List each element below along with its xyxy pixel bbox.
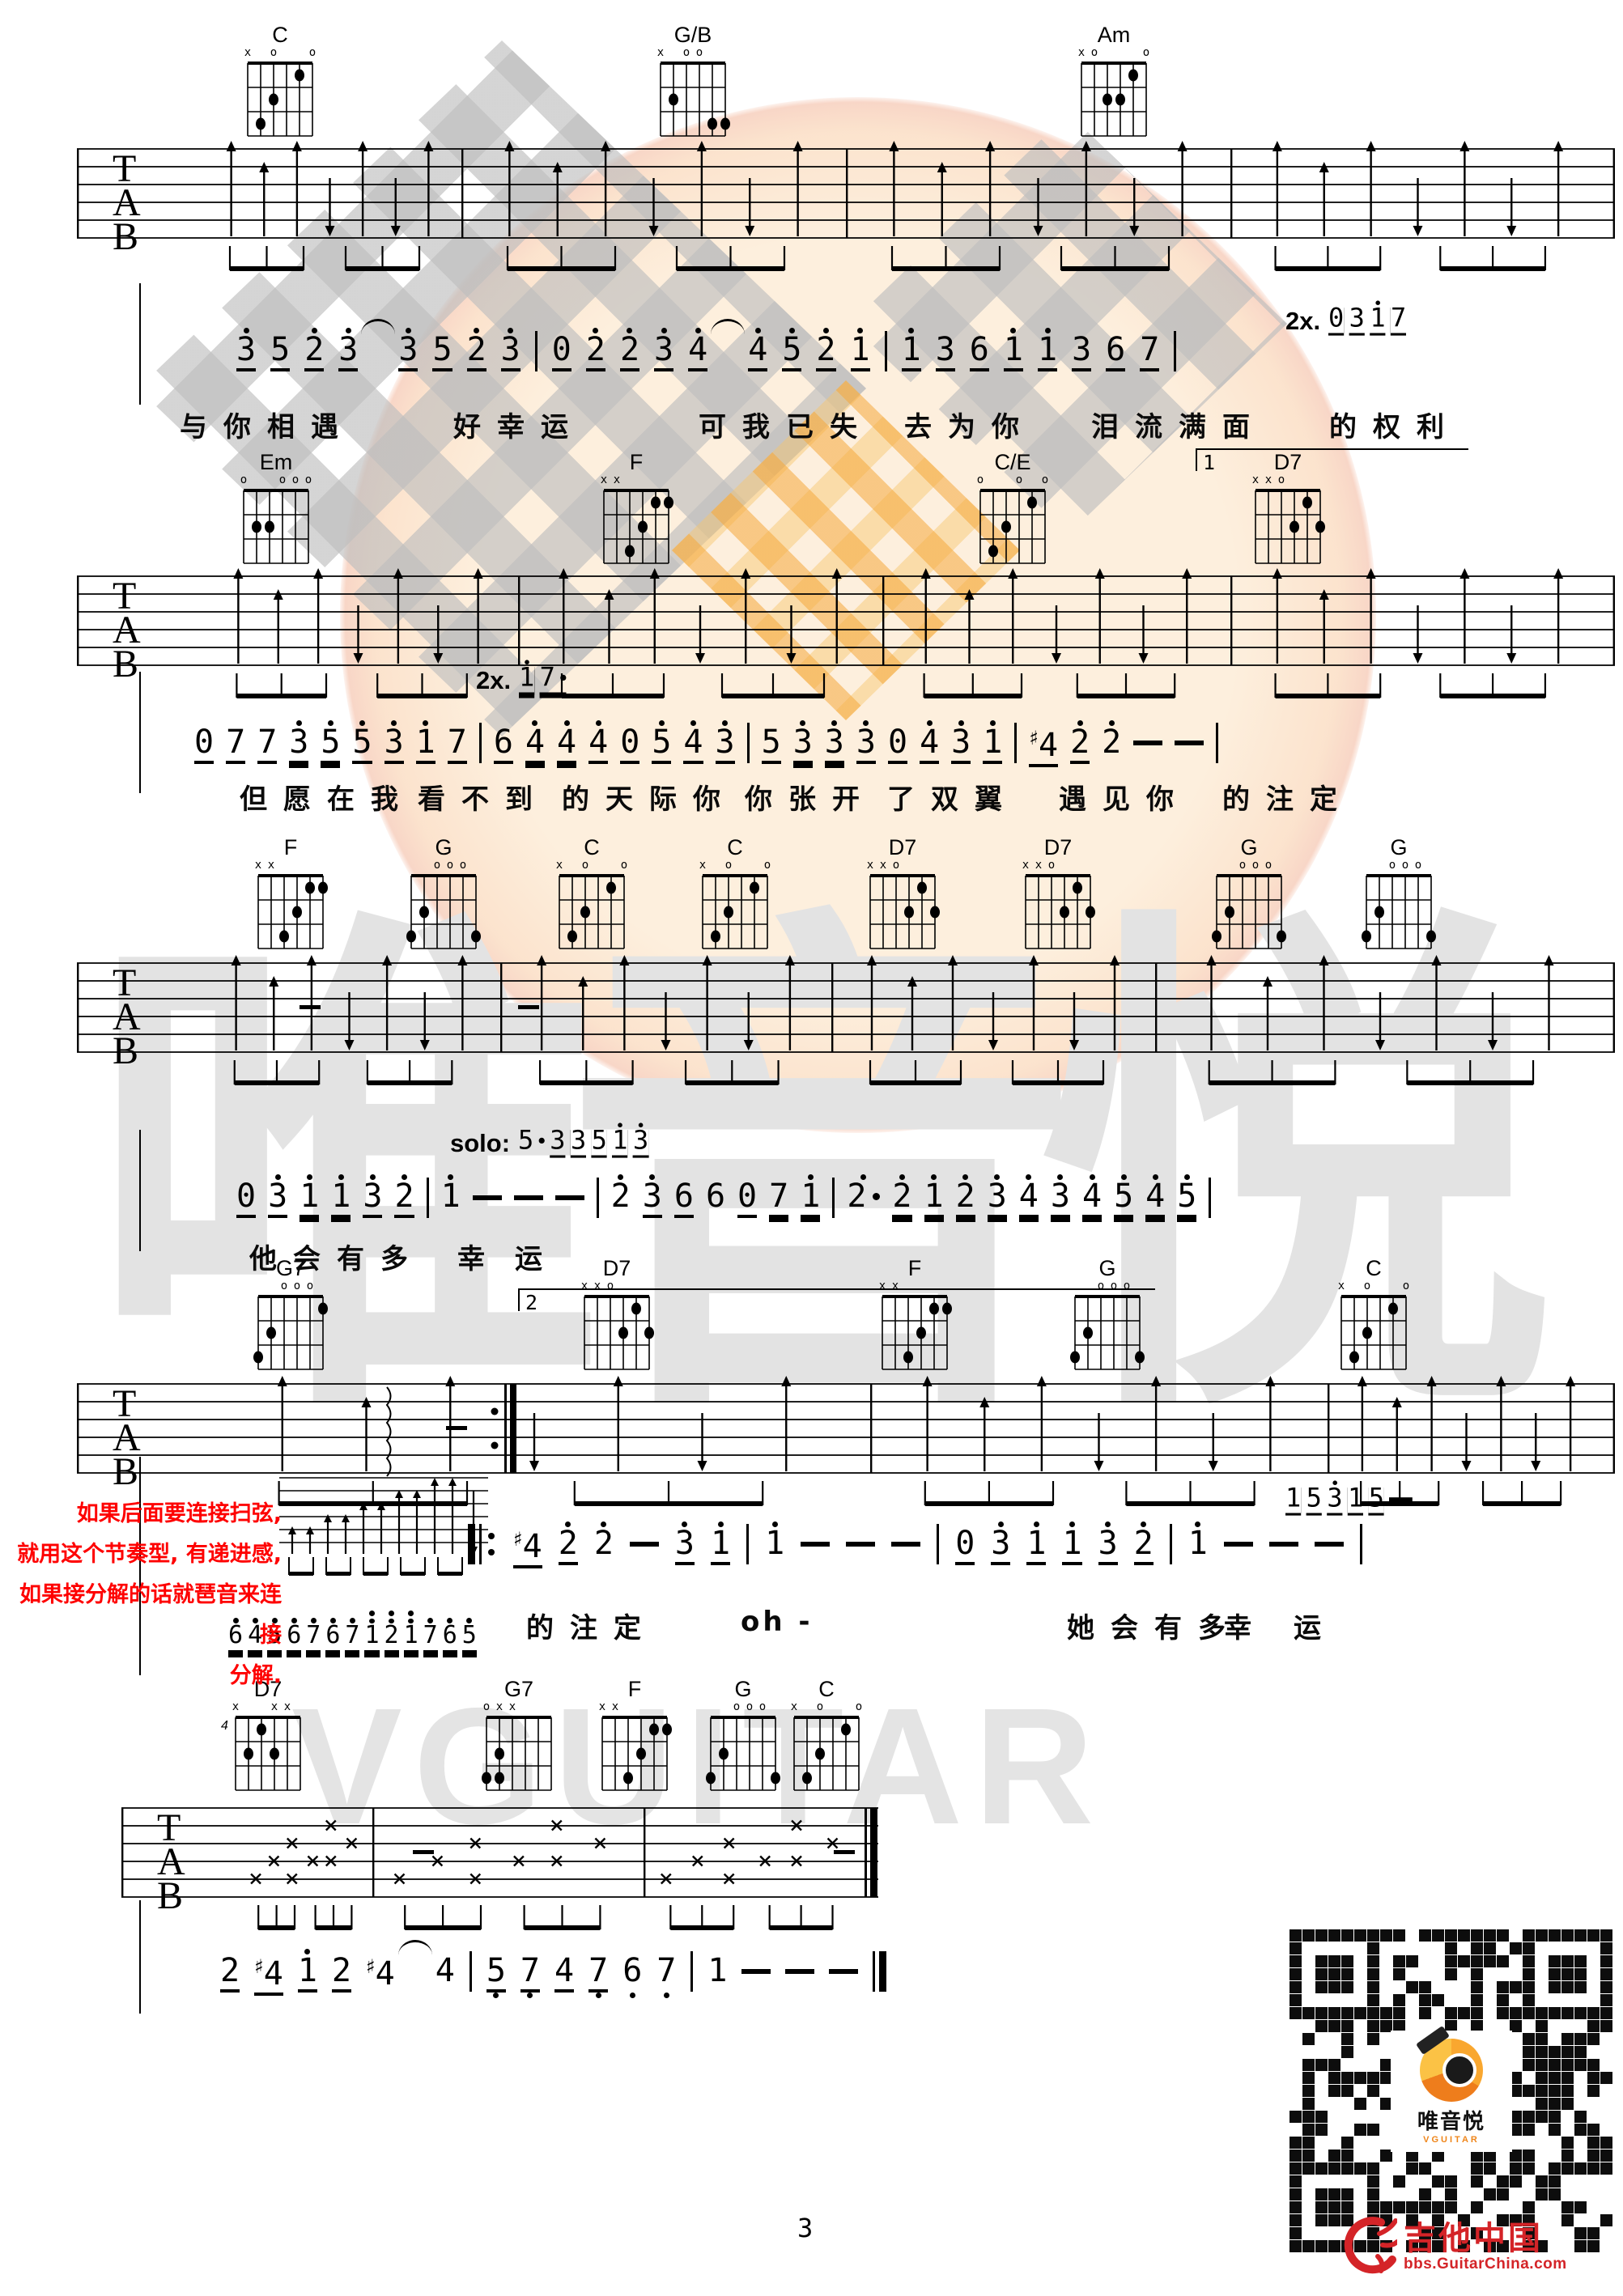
jianpu-note: 1 xyxy=(441,1162,461,1233)
jianpu-note: 1 xyxy=(1004,316,1023,386)
jianpu-note: 3 xyxy=(398,316,418,386)
annotation-label: 2x. xyxy=(1285,307,1320,347)
jianpu-note: 3 xyxy=(988,1162,1007,1233)
chord-string-markers: xxo xyxy=(1247,474,1328,487)
note-digit: 6 xyxy=(325,1623,340,1650)
chord-diagram: Fxx xyxy=(594,1677,675,1799)
lyric-segment: 的权利 xyxy=(1329,405,1460,444)
note-line: 分解. xyxy=(10,1656,282,1696)
string-marker: o xyxy=(1412,859,1425,872)
duration-dash xyxy=(1175,741,1204,745)
string-marker: o xyxy=(444,859,457,872)
jianpu-note: 4 xyxy=(1082,1162,1102,1233)
lyric-segment: 运 xyxy=(515,1237,559,1276)
note-digit: 4 xyxy=(554,1954,574,1989)
note-digit: 4 xyxy=(748,333,767,368)
note-digit: 6 xyxy=(1106,333,1125,368)
barline xyxy=(1174,331,1176,371)
note-digit: ♯4 xyxy=(254,1950,283,1993)
string-marker: x xyxy=(864,859,877,872)
chord-string-markers: ooo xyxy=(703,1701,784,1714)
svg-text:×: × xyxy=(593,1829,607,1857)
lyric-segment: 但愿在我 xyxy=(240,777,414,817)
chord-grid xyxy=(480,1714,558,1795)
jianpu-note: 3 xyxy=(289,708,308,779)
jianpu-note: 7 xyxy=(257,708,277,779)
string-marker: o xyxy=(431,859,444,872)
note-digit: 1 xyxy=(441,1180,461,1215)
string-marker xyxy=(293,47,306,60)
note-digit: 7 xyxy=(345,1623,359,1650)
string-marker xyxy=(278,859,291,872)
note-digit: 1 xyxy=(1038,333,1057,368)
svg-text:×: × xyxy=(659,1865,673,1893)
string-marker: o xyxy=(743,1701,756,1714)
jianpu-note: 4 xyxy=(557,708,576,779)
chord-grid xyxy=(788,1714,865,1795)
chord-name: G xyxy=(1067,1256,1148,1280)
note-digit: 0 xyxy=(737,1180,757,1215)
jianpu-note: 1 xyxy=(765,1509,784,1580)
string-marker: x xyxy=(1249,474,1262,487)
line-start-barline xyxy=(139,283,141,405)
lyric-segment: 与你相遇 xyxy=(180,405,355,444)
chord-grid xyxy=(1360,872,1438,953)
string-marker: o xyxy=(291,1280,304,1293)
string-marker xyxy=(304,859,317,872)
note-digit: 7 xyxy=(656,1954,676,1989)
note-digit: 3 xyxy=(363,1180,382,1215)
barline xyxy=(1216,723,1218,763)
string-marker xyxy=(1374,1280,1387,1293)
note-digit: 3 xyxy=(1327,1485,1342,1513)
tab-staff: TAB xyxy=(77,139,1615,283)
chord-grid xyxy=(405,872,482,953)
jianpu-note: 6 xyxy=(706,1162,725,1233)
note-digit: 6 xyxy=(622,1954,642,1989)
string-marker xyxy=(1058,859,1071,872)
string-marker: x xyxy=(788,1701,801,1714)
jianpu-note: 1 xyxy=(612,1113,627,1169)
note-digit: 3 xyxy=(936,333,955,368)
svg-text:×: × xyxy=(512,1847,526,1875)
note-digit: 3 xyxy=(675,1527,695,1562)
note-digit: 3 xyxy=(633,1127,648,1155)
string-marker: x xyxy=(229,1701,242,1714)
jianpu-note: 6 xyxy=(622,1937,642,2007)
string-marker xyxy=(1084,859,1097,872)
string-marker xyxy=(1314,474,1327,487)
jianpu-note: 3 xyxy=(654,316,673,386)
note-line: 如果接分解的话就琶音来连接 xyxy=(10,1575,282,1656)
note-digit: 1 xyxy=(416,726,435,761)
chord-diagram: Fxx xyxy=(596,450,677,572)
string-marker xyxy=(592,859,605,872)
note-digit: 7 xyxy=(226,726,245,761)
note-digit: 1 xyxy=(801,1180,820,1215)
svg-text:×: × xyxy=(690,1847,705,1875)
barline xyxy=(1209,1178,1211,1218)
string-marker: o xyxy=(890,859,903,872)
chord-grid xyxy=(252,872,329,953)
jianpu-note: 3 xyxy=(268,1162,287,1233)
duration-dash xyxy=(630,1542,659,1547)
jianpu-note: 0 xyxy=(1328,291,1344,347)
string-marker xyxy=(566,859,579,872)
page-number: 3 xyxy=(797,2213,813,2243)
jianpu-note: 3 xyxy=(571,1113,586,1169)
string-marker xyxy=(1373,859,1386,872)
chord-grid xyxy=(241,60,319,141)
chord-string-markers: xxx xyxy=(227,1701,308,1714)
string-marker xyxy=(801,1701,814,1714)
repeat-annotation: 2x.17 xyxy=(476,636,578,707)
note-digit: 3 xyxy=(856,726,876,761)
jianpu-note: 5 xyxy=(462,1611,477,1668)
note-digit: 2 xyxy=(220,1954,240,1989)
note-digit: ♯4 xyxy=(366,1950,395,1993)
note-digit: 3 xyxy=(550,1127,565,1155)
jianpu-note: ♯4 xyxy=(254,1933,283,2010)
string-marker xyxy=(916,859,928,872)
string-marker xyxy=(1000,474,1013,487)
jianpu-note: 2 xyxy=(220,1937,240,2007)
note-digit: 2 xyxy=(620,333,639,368)
note-digit: 3 xyxy=(825,726,844,761)
string-marker xyxy=(704,1701,717,1714)
jianpu-note: 2 xyxy=(956,1162,975,1233)
string-marker: o xyxy=(1140,47,1153,60)
line-start-barline xyxy=(139,1900,141,2014)
note-digit: 2 xyxy=(1102,726,1121,761)
jianpu-note: 3 xyxy=(675,1509,695,1580)
string-marker xyxy=(1425,859,1438,872)
note-digit: 4 xyxy=(588,726,608,761)
jianpu-note: ♯4 xyxy=(1029,704,1058,782)
annotation-label: 2x. xyxy=(476,666,511,707)
jianpu-line: 2♯412♯445747671 xyxy=(220,1933,886,2010)
jianpu-note: 4 xyxy=(554,1937,574,2007)
octave-dots-low xyxy=(630,1989,635,2007)
note-digit: 3 xyxy=(1349,305,1365,333)
svg-text:×: × xyxy=(722,1829,737,1857)
note-digit: 1 xyxy=(364,1623,379,1650)
note-digit: 3 xyxy=(571,1127,586,1155)
note-digit: 3 xyxy=(1051,1180,1070,1215)
lyric-segment: 她会有多 xyxy=(1067,1606,1242,1645)
jianpu-note: 1 xyxy=(331,1162,351,1233)
string-marker: o xyxy=(1236,859,1249,872)
duration-dash xyxy=(1315,1542,1344,1547)
chord-name: G7 xyxy=(478,1677,559,1701)
chord-diagram: Cxoo xyxy=(695,835,775,957)
element: 0317 xyxy=(1328,291,1406,347)
chord-name: Am xyxy=(1073,23,1154,47)
chord-name: G xyxy=(403,835,484,859)
chord-diagram: Gooo xyxy=(703,1677,784,1799)
duration-dash xyxy=(473,1195,502,1200)
jianpu-note: 3 xyxy=(1349,291,1365,347)
note-digit: ♯4 xyxy=(1029,722,1058,764)
note-digit: 2 xyxy=(611,1180,631,1215)
svg-text:×: × xyxy=(468,1865,482,1893)
chord-string-markers: xxo xyxy=(862,859,943,872)
note-digit: 1 xyxy=(1188,1527,1208,1562)
note-digit: 3 xyxy=(398,333,418,368)
jianpu-note: 4 xyxy=(525,708,545,779)
note-digit: ♯4 xyxy=(513,1523,542,1565)
duration-dash xyxy=(891,1542,920,1547)
jianpu-note: 6 xyxy=(674,1162,694,1233)
jianpu-note: 7 xyxy=(423,1611,438,1668)
chord-diagram: Gooo xyxy=(1358,835,1439,957)
guitarchina-name: 吉他中国 xyxy=(1404,2222,1567,2256)
jianpu-note: 4 xyxy=(683,708,703,779)
chord-diagram: Gooo xyxy=(403,835,484,957)
jianpu-note: 4 xyxy=(688,316,707,386)
string-marker xyxy=(839,1701,852,1714)
string-marker: x xyxy=(597,474,610,487)
string-marker xyxy=(649,474,662,487)
note-digit: 5 xyxy=(486,1954,506,1989)
string-marker xyxy=(317,1280,329,1293)
jianpu-note: 3 xyxy=(1072,316,1091,386)
tab-staff: TAB xyxy=(77,567,1615,711)
chord-name: G xyxy=(703,1677,784,1701)
chord-grid xyxy=(596,1714,673,1795)
jianpu-note: 7 xyxy=(306,1611,321,1668)
chord-string-markers: xx xyxy=(596,474,677,487)
note-digit: 3 xyxy=(793,726,813,761)
lyric-segment: 运 xyxy=(1294,1606,1337,1645)
tie-arc xyxy=(398,1940,432,1955)
note-digit: 3 xyxy=(951,726,971,761)
string-marker: x xyxy=(610,474,623,487)
string-marker xyxy=(254,47,267,60)
note-digit: 0 xyxy=(620,726,639,761)
jianpu-note: 3 xyxy=(1327,1471,1342,1527)
volta-bracket: 1 xyxy=(1196,448,1468,471)
note-digit: 2 xyxy=(956,1180,975,1215)
lyric-segment: 可我已失 xyxy=(699,405,873,444)
chord-diagram: D7xxo xyxy=(862,835,943,957)
barline xyxy=(747,723,750,763)
jianpu-note: 2 xyxy=(892,1162,911,1233)
chord-grid xyxy=(597,487,675,568)
string-marker xyxy=(667,47,680,60)
chord-diagram: Amxoo xyxy=(1073,23,1154,145)
qr-brand-en: VGUITAR xyxy=(1423,2135,1480,2145)
note-digit: 7 xyxy=(448,726,467,761)
jianpu-note: 7 xyxy=(345,1611,359,1668)
note-digit: 3 xyxy=(716,726,735,761)
repeat-begin xyxy=(468,1524,497,1564)
chord-grid xyxy=(1335,1293,1413,1374)
chord-name: F xyxy=(596,450,677,474)
jianpu-note: 5 xyxy=(518,1113,545,1169)
chord-string-markers: xoo xyxy=(652,47,733,60)
lyric-segment: 你张开 xyxy=(745,777,876,817)
barline xyxy=(937,1524,939,1564)
string-marker: o xyxy=(302,474,315,487)
note-digit: 4 xyxy=(1145,1180,1165,1215)
string-marker: o xyxy=(1361,1280,1374,1293)
note-digit: 3 xyxy=(1072,333,1091,368)
string-marker xyxy=(242,1701,255,1714)
jianpu-note: 5 xyxy=(1177,1162,1196,1233)
jianpu-note: 5 xyxy=(1114,1162,1133,1233)
jianpu-note: 3 xyxy=(716,708,735,779)
jianpu-note: 0 xyxy=(888,708,907,779)
note-digit: 1 xyxy=(1004,333,1023,368)
chord-name: C xyxy=(695,835,775,859)
note-digit: 6 xyxy=(443,1623,457,1650)
chord-string-markers: ooo xyxy=(972,474,1053,487)
string-marker: x xyxy=(281,1701,294,1714)
jianpu-note: 1 xyxy=(707,1937,727,2007)
barline xyxy=(690,1951,693,1992)
repeat-annotation: 2x.0317 xyxy=(1285,277,1425,347)
duration-dash xyxy=(741,1969,771,1974)
qr-center-logo: 唯音悦 VGUITAR xyxy=(1391,2031,1512,2152)
string-marker xyxy=(661,1701,673,1714)
svg-text:×: × xyxy=(324,1847,338,1875)
string-marker xyxy=(1348,1280,1361,1293)
note-digit: 5 xyxy=(1369,1485,1384,1513)
string-marker: o xyxy=(693,47,706,60)
string-marker: o xyxy=(1039,474,1052,487)
note-digit: 2 xyxy=(467,333,486,368)
string-marker: o xyxy=(278,1280,291,1293)
chord-string-markers: xoo xyxy=(786,1701,867,1714)
svg-text:B: B xyxy=(113,643,138,685)
jianpu-note: 1 xyxy=(364,1611,379,1668)
string-marker: o xyxy=(306,47,319,60)
string-marker: o xyxy=(457,859,469,872)
note-digit: 2 xyxy=(847,1180,880,1215)
volta-bracket: 2 xyxy=(518,1288,1155,1311)
chord-grid xyxy=(704,1714,782,1795)
jianpu-note: 6 xyxy=(1106,316,1125,386)
line-start-barline xyxy=(139,672,141,793)
note-digit: 3 xyxy=(654,333,673,368)
element: 17 xyxy=(519,650,567,707)
string-marker: o xyxy=(237,474,250,487)
svg-text:×: × xyxy=(825,1829,839,1857)
note-digit: 7 xyxy=(520,1954,540,1989)
chord-grid xyxy=(696,872,774,953)
note-digit: 4 xyxy=(557,726,576,761)
note-digit: 6 xyxy=(706,1180,725,1215)
chord-string-markers: ooo xyxy=(1209,859,1289,872)
chord-string-markers: ooo xyxy=(250,1280,331,1293)
svg-text:×: × xyxy=(305,1847,320,1875)
note-digit: 1 xyxy=(612,1127,627,1155)
final-barline xyxy=(873,1951,886,1992)
string-marker: x xyxy=(252,859,265,872)
jianpu-line: ♯4223110311321 xyxy=(468,1505,1362,1583)
svg-text:×: × xyxy=(344,1829,359,1857)
chord-grid xyxy=(974,487,1052,568)
chord-string-markers: xoo xyxy=(1073,47,1154,60)
barline xyxy=(479,723,482,763)
duration-dash xyxy=(514,1195,543,1200)
chord-diagram: Fxx xyxy=(250,835,331,957)
octave-dots-low xyxy=(596,1989,601,2007)
note-digit: 1 xyxy=(1285,1485,1301,1513)
jianpu-note: 3 xyxy=(236,316,256,386)
string-marker xyxy=(636,474,649,487)
octave-dots-low xyxy=(493,1989,499,2007)
string-marker: o xyxy=(1275,474,1288,487)
string-marker xyxy=(706,47,719,60)
annotation-label: solo: xyxy=(450,1129,510,1169)
jianpu-line: 0773553176444054353330431♯422 xyxy=(194,704,1218,782)
string-marker xyxy=(1210,859,1223,872)
jianpu-note: 7 xyxy=(588,1937,608,2007)
string-marker xyxy=(1223,859,1236,872)
jianpu-note: 1 xyxy=(902,316,921,386)
note-digit: 3 xyxy=(1098,1527,1118,1562)
string-marker: o xyxy=(579,859,592,872)
jianpu-note: 4 xyxy=(748,316,767,386)
barline xyxy=(1014,723,1017,763)
string-marker xyxy=(826,1701,839,1714)
thick-bar xyxy=(879,1951,886,1992)
note-digit: 7 xyxy=(257,726,277,761)
note-digit: 7 xyxy=(540,664,567,692)
string-marker: o xyxy=(852,1701,865,1714)
string-marker xyxy=(418,859,431,872)
string-marker xyxy=(623,474,636,487)
note-digit: 2 xyxy=(1070,726,1090,761)
duration-dash xyxy=(1224,1542,1253,1547)
barline xyxy=(832,1178,835,1218)
note-digit: 1 xyxy=(924,1180,944,1215)
string-marker xyxy=(622,1701,635,1714)
chord-string-markers: xoo xyxy=(1333,1280,1414,1293)
string-marker: o xyxy=(974,474,987,487)
jianpu-note: 2 xyxy=(1134,1509,1154,1580)
chord-grid xyxy=(553,872,631,953)
barline xyxy=(469,1951,472,1992)
note-digit: 2 xyxy=(394,1180,414,1215)
duration-dash xyxy=(846,1542,875,1547)
element xyxy=(479,1524,482,1564)
handwritten-note: 如果后面要连接扫弦, 就用这个节奏型, 有递进感, 如果接分解的话就琶音来连接 … xyxy=(10,1494,282,1696)
jianpu-note: 0 xyxy=(194,708,214,779)
note-digit: 1 xyxy=(404,1623,418,1650)
tab-staff: TAB xyxy=(77,953,1615,1097)
jianpu-note: 4 xyxy=(1145,1162,1165,1233)
string-marker: x xyxy=(877,859,890,872)
jianpu-note: 3 xyxy=(643,1162,662,1233)
note-digit: 1 xyxy=(902,333,921,368)
element xyxy=(873,1951,875,1992)
duration-dash xyxy=(785,1969,814,1974)
jianpu-note: 3 xyxy=(1098,1509,1118,1580)
jianpu-note: 0 xyxy=(552,316,571,386)
tab-staff: TAB×××××××××××××××××××××××× xyxy=(121,1798,878,1942)
string-marker: x xyxy=(696,859,709,872)
jianpu-note: 1 xyxy=(1038,316,1057,386)
note-digit: 5 xyxy=(352,726,372,761)
tie-arc xyxy=(711,319,745,334)
element: 533513 xyxy=(518,1113,648,1169)
octave-dots-low xyxy=(527,1989,533,2007)
chord-grid xyxy=(654,60,732,141)
barline xyxy=(597,1178,599,1218)
